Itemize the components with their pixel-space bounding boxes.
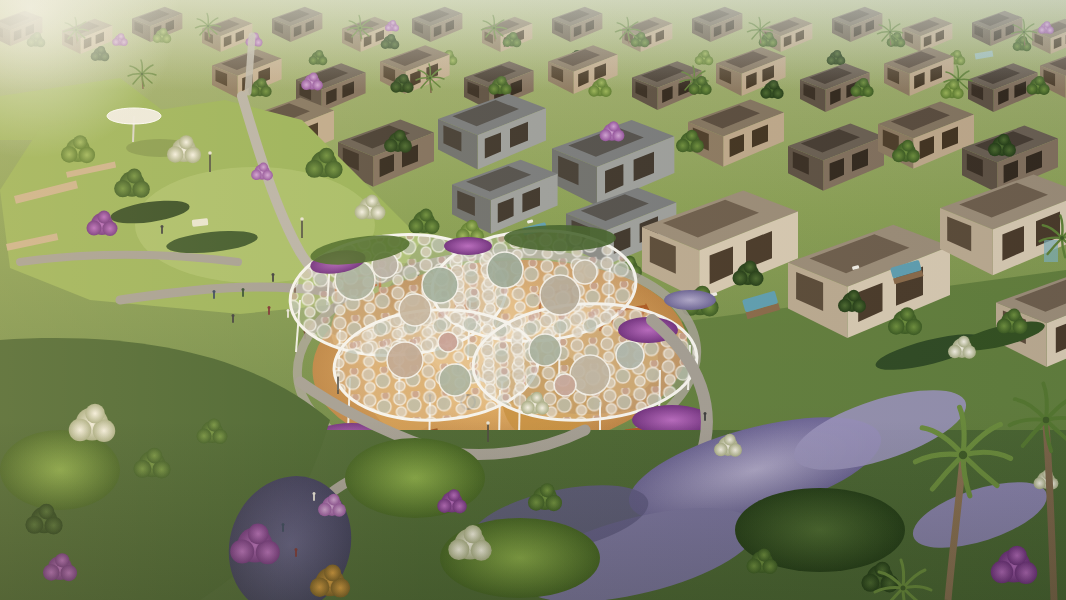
rendering-stage [0,0,1066,600]
atmosphere [0,0,1066,600]
community-aerial-rendering [0,0,1066,600]
bottom-vignette [0,0,1066,600]
